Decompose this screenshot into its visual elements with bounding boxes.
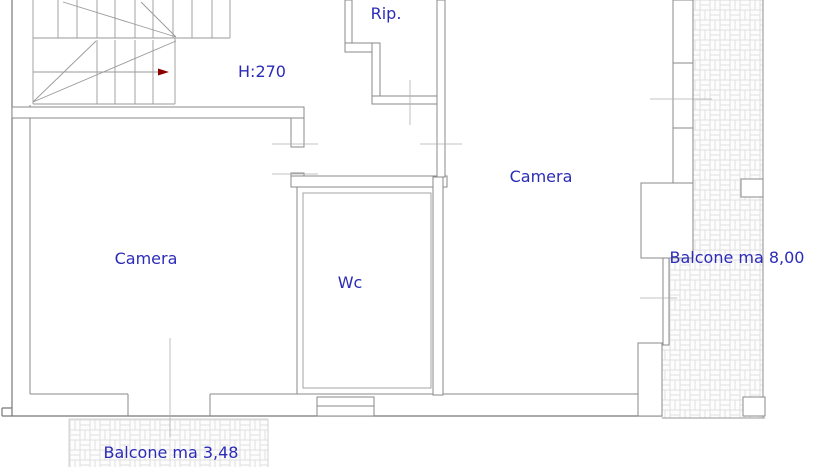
label-storage: Rip. [371, 4, 402, 23]
stair-break-lines [33, 2, 176, 102]
camera-left-top-wall [12, 107, 304, 118]
room-wc-walls [291, 176, 447, 416]
rip-right-wall-upper [437, 0, 445, 177]
stairs [33, 0, 230, 104]
rip-right-wall-lower [433, 177, 443, 395]
label-balcony-bottom: Balcone ma 3,48 [104, 443, 239, 462]
stair-risers-upper [58, 0, 212, 38]
label-bathroom: Wc [338, 273, 363, 292]
window-wc [317, 397, 374, 416]
balcony-pillar-lower [743, 397, 765, 416]
stair-direction-arrow-icon [158, 69, 169, 76]
east-wall-thin-segment [663, 258, 669, 345]
label-bedroom-left: Camera [115, 249, 178, 268]
east-wall-pier-upper [641, 183, 693, 258]
label-balcony-right: Balcone ma 8,00 [670, 248, 805, 267]
label-bedroom-right: Camera [510, 167, 573, 186]
balcony-pillar-upper [741, 179, 763, 197]
wc-outer-wall [297, 187, 437, 394]
label-ceiling-height: H:270 [238, 62, 286, 81]
floor-plan-page: Rip. H:270 Camera Camera Wc Balcone ma 8… [0, 0, 835, 467]
rip-mid-wall [372, 43, 380, 104]
floor-plan-svg: Rip. H:270 Camera Camera Wc Balcone ma 8… [0, 0, 835, 467]
stairs-frame [33, 0, 230, 104]
wc-top-wall [291, 176, 447, 187]
east-wall-window-band [673, 0, 693, 188]
east-wall-pier-lower [638, 343, 662, 416]
camera-left-right-wall-upper [291, 118, 304, 147]
room-camera-left-walls [12, 107, 304, 187]
rip-bottom-wall [372, 96, 445, 104]
